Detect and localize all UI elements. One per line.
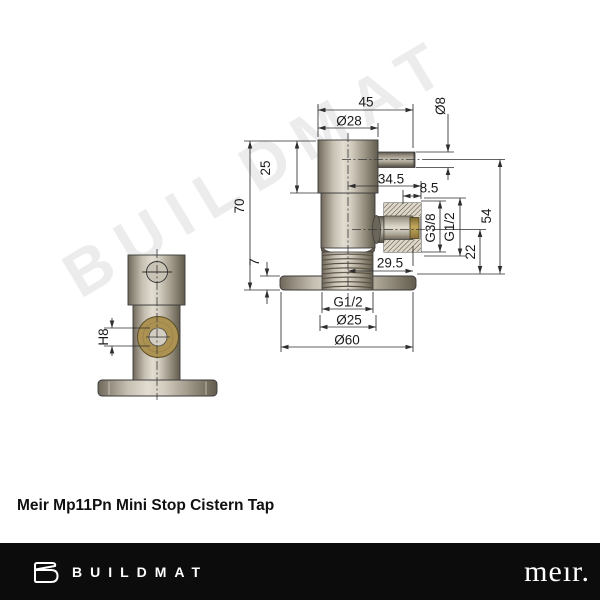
technical-drawing: 45 Ø28 Ø8 25 70 7 34.5 8.5 G3/8 G1/2 22 … (0, 0, 600, 480)
front-flange (98, 380, 217, 396)
dim-flange-diameter: Ø60 (334, 333, 360, 348)
meir-logo: meır. (524, 555, 590, 589)
dim-outlet-length: 29.5 (377, 256, 403, 271)
front-view (98, 249, 217, 400)
dim-inlet-thread: G1/2 (333, 295, 362, 310)
product-title: Meir Mp11Pn Mini Stop Cistern Tap (17, 497, 274, 515)
dim-outlet-thread-length: 8.5 (420, 181, 439, 196)
buildmat-logo-icon (28, 557, 64, 587)
product-spec-sheet: BUILDMAT (0, 0, 600, 600)
brass-insert (410, 218, 419, 239)
dim-body-diameter: Ø28 (336, 114, 362, 129)
dim-overall-height: 70 (232, 198, 247, 213)
dim-spigot-diameter: Ø8 (433, 97, 448, 115)
dim-outlet-thread-outer: G1/2 (442, 212, 457, 241)
dim-upper-body-height: 25 (258, 160, 273, 175)
dim-overall-width: 45 (358, 95, 373, 110)
buildmat-wordmark: BUILDMAT (72, 564, 208, 580)
dim-inlet-diameter: Ø25 (336, 313, 362, 328)
dim-spigot-centre-height: 54 (479, 208, 494, 224)
dim-outlet-thread-inner: G3/8 (423, 213, 438, 242)
outlet-bore (384, 216, 413, 240)
dim-outlet-centre-height: 22 (463, 244, 478, 259)
footer-bar: BUILDMAT meır. (0, 543, 600, 600)
dim-hole-tolerance: H8 (96, 328, 111, 345)
dim-flange-thickness: 7 (247, 258, 262, 266)
section-view (280, 133, 437, 298)
dim-outlet-offset: 34.5 (378, 172, 404, 187)
